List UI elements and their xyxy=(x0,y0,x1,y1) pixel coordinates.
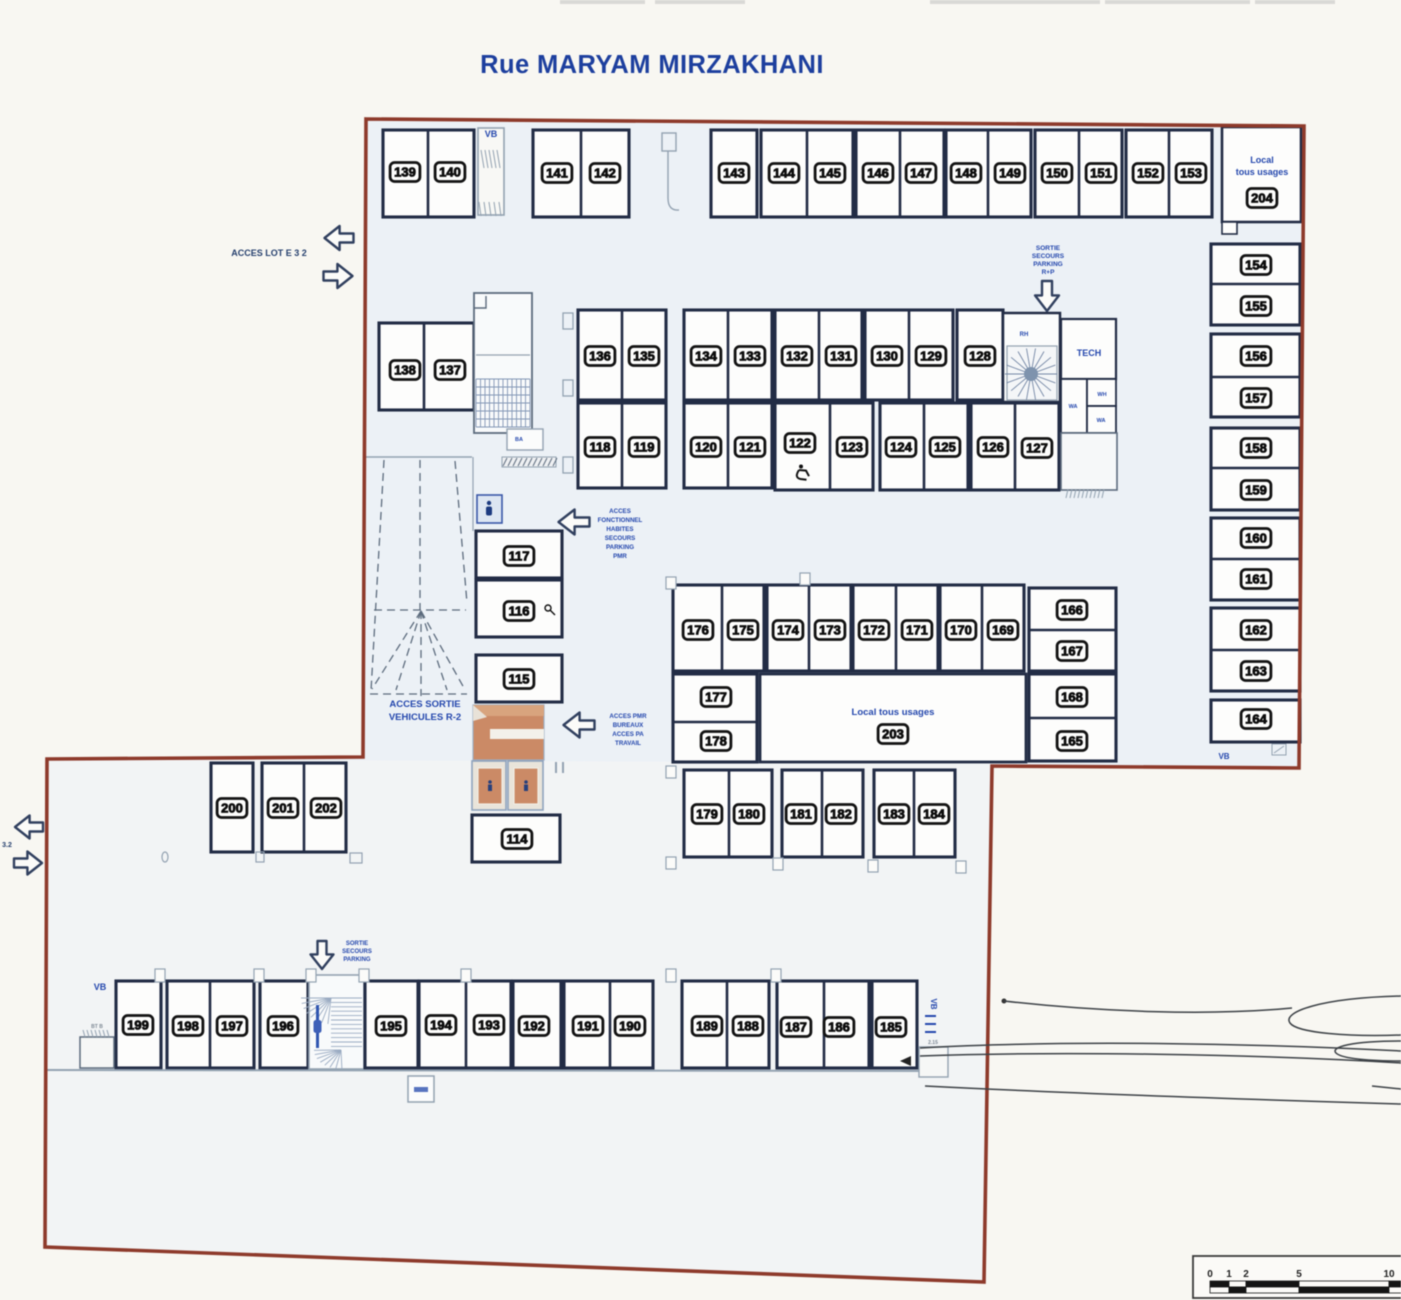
svg-text:WH: WH xyxy=(1097,392,1106,398)
svg-text:ACCES PMR: ACCES PMR xyxy=(609,713,647,720)
svg-text:SECOURS: SECOURS xyxy=(605,535,636,542)
svg-text:164: 164 xyxy=(1245,712,1267,727)
svg-text:187: 187 xyxy=(785,1020,807,1035)
svg-text:144: 144 xyxy=(773,166,795,181)
svg-text:200: 200 xyxy=(221,801,243,816)
svg-text:194: 194 xyxy=(430,1018,452,1033)
svg-text:121: 121 xyxy=(739,440,761,455)
svg-text:171: 171 xyxy=(906,623,928,638)
svg-text:145: 145 xyxy=(819,166,841,181)
svg-text:182: 182 xyxy=(830,807,852,822)
svg-text:137: 137 xyxy=(439,363,461,378)
svg-text:201: 201 xyxy=(272,801,294,816)
svg-text:119: 119 xyxy=(634,440,655,455)
svg-text:173: 173 xyxy=(819,623,841,638)
svg-text:Local tous usages: Local tous usages xyxy=(852,707,935,718)
svg-text:184: 184 xyxy=(923,807,945,822)
svg-text:192: 192 xyxy=(523,1019,545,1034)
svg-text:116: 116 xyxy=(509,604,530,619)
svg-text:ACCES SORTIE: ACCES SORTIE xyxy=(389,699,460,710)
svg-text:PARKING: PARKING xyxy=(343,957,371,963)
svg-text:149: 149 xyxy=(999,166,1021,181)
svg-text:PARKING: PARKING xyxy=(1033,261,1063,268)
svg-text:177: 177 xyxy=(705,690,727,705)
svg-text:196: 196 xyxy=(272,1019,294,1034)
svg-text:176: 176 xyxy=(687,623,709,638)
svg-text:WA: WA xyxy=(1069,404,1078,410)
svg-text:156: 156 xyxy=(1245,349,1267,364)
svg-text:BA: BA xyxy=(515,437,523,443)
svg-text:VEHICULES R-2: VEHICULES R-2 xyxy=(389,712,461,723)
svg-text:175: 175 xyxy=(732,623,754,638)
svg-text:141: 141 xyxy=(546,166,568,181)
svg-text:190: 190 xyxy=(619,1019,641,1034)
svg-text:179: 179 xyxy=(696,807,718,822)
svg-text:124: 124 xyxy=(890,440,912,455)
svg-text:189: 189 xyxy=(696,1019,718,1034)
svg-text:162: 162 xyxy=(1245,623,1267,638)
svg-text:SORTIE: SORTIE xyxy=(346,941,368,947)
svg-text:127: 127 xyxy=(1026,441,1048,456)
svg-text:165: 165 xyxy=(1061,734,1083,749)
svg-text:VB: VB xyxy=(485,129,498,139)
svg-text:5: 5 xyxy=(1296,1269,1302,1280)
svg-text:163: 163 xyxy=(1245,664,1267,679)
svg-text:140: 140 xyxy=(439,165,461,180)
svg-text:TRAVAIL: TRAVAIL xyxy=(615,740,641,747)
svg-text:133: 133 xyxy=(739,349,761,364)
svg-text:117: 117 xyxy=(509,549,530,564)
svg-text:195: 195 xyxy=(380,1019,402,1034)
svg-text:118: 118 xyxy=(590,440,611,455)
svg-text:180: 180 xyxy=(738,807,760,822)
svg-text:3.2: 3.2 xyxy=(2,842,12,849)
svg-text:202: 202 xyxy=(315,801,337,816)
svg-text:SECOURS: SECOURS xyxy=(1032,253,1065,260)
svg-text:RH: RH xyxy=(1020,332,1029,338)
svg-text:150: 150 xyxy=(1046,166,1068,181)
svg-text:1: 1 xyxy=(1226,1269,1232,1280)
svg-text:VB: VB xyxy=(1218,752,1229,761)
svg-text:199: 199 xyxy=(127,1018,149,1033)
svg-text:10: 10 xyxy=(1383,1269,1395,1280)
svg-text:ACCES: ACCES xyxy=(609,508,631,515)
svg-text:2.15: 2.15 xyxy=(928,1040,938,1046)
svg-text:169: 169 xyxy=(992,623,1014,638)
svg-text:167: 167 xyxy=(1061,644,1083,659)
svg-text:186: 186 xyxy=(828,1020,850,1035)
svg-text:134: 134 xyxy=(695,349,717,364)
svg-text:183: 183 xyxy=(883,807,905,822)
svg-text:BT B: BT B xyxy=(91,1024,103,1030)
svg-text:FONCTIONNEL: FONCTIONNEL xyxy=(598,517,643,524)
svg-text:ACCES LOT E 3 2: ACCES LOT E 3 2 xyxy=(231,248,307,258)
svg-text:161: 161 xyxy=(1245,572,1267,587)
svg-text:197: 197 xyxy=(221,1019,243,1034)
svg-text:Local: Local xyxy=(1250,155,1274,165)
svg-text:136: 136 xyxy=(589,349,611,364)
svg-text:Rue MARYAM MIRZAKHANI: Rue MARYAM MIRZAKHANI xyxy=(480,51,824,79)
svg-text:R+P: R+P xyxy=(1042,269,1055,276)
svg-text:128: 128 xyxy=(969,349,991,364)
svg-text:193: 193 xyxy=(478,1018,500,1033)
svg-text:166: 166 xyxy=(1061,603,1083,618)
svg-text:191: 191 xyxy=(577,1019,599,1034)
svg-text:178: 178 xyxy=(705,734,727,749)
svg-text:146: 146 xyxy=(867,166,889,181)
svg-text:143: 143 xyxy=(723,166,745,181)
svg-text:120: 120 xyxy=(695,440,717,455)
svg-text:122: 122 xyxy=(789,436,811,451)
svg-text:TECH: TECH xyxy=(1077,348,1102,358)
svg-text:159: 159 xyxy=(1245,483,1267,498)
svg-text:129: 129 xyxy=(920,349,942,364)
svg-text:154: 154 xyxy=(1245,258,1267,273)
svg-text:185: 185 xyxy=(880,1020,902,1035)
svg-text:204: 204 xyxy=(1251,191,1273,206)
svg-text:139: 139 xyxy=(394,165,416,180)
svg-text:ACCES PA: ACCES PA xyxy=(612,731,644,738)
svg-text:131: 131 xyxy=(830,349,852,364)
svg-text:142: 142 xyxy=(594,166,616,181)
svg-text:114: 114 xyxy=(507,832,529,847)
svg-text:PMR: PMR xyxy=(613,553,627,560)
svg-text:138: 138 xyxy=(394,363,416,378)
svg-text:VB: VB xyxy=(929,998,938,1009)
svg-text:126: 126 xyxy=(982,440,1004,455)
svg-text:172: 172 xyxy=(863,623,885,638)
svg-text:157: 157 xyxy=(1245,391,1267,406)
svg-text:148: 148 xyxy=(955,166,977,181)
svg-text:168: 168 xyxy=(1061,690,1083,705)
svg-text:155: 155 xyxy=(1245,299,1267,314)
svg-text:0: 0 xyxy=(1207,1269,1213,1280)
svg-text:BUREAUX: BUREAUX xyxy=(613,722,644,729)
svg-text:170: 170 xyxy=(950,623,972,638)
svg-text:181: 181 xyxy=(790,807,812,822)
svg-text:188: 188 xyxy=(737,1019,759,1034)
svg-text:160: 160 xyxy=(1245,531,1267,546)
svg-text:135: 135 xyxy=(633,349,655,364)
svg-text:152: 152 xyxy=(1137,166,1159,181)
svg-text:115: 115 xyxy=(509,672,530,687)
svg-text:132: 132 xyxy=(786,349,808,364)
svg-text:174: 174 xyxy=(777,623,799,638)
svg-text:153: 153 xyxy=(1180,166,1202,181)
svg-text:tous usages: tous usages xyxy=(1236,167,1289,177)
svg-text:125: 125 xyxy=(934,440,956,455)
svg-text:130: 130 xyxy=(876,349,898,364)
svg-text:WA: WA xyxy=(1097,418,1106,424)
svg-text:PARKING: PARKING xyxy=(606,544,634,551)
svg-text:151: 151 xyxy=(1090,166,1112,181)
svg-text:SECOURS: SECOURS xyxy=(342,949,372,955)
svg-text:VB: VB xyxy=(94,982,107,992)
svg-text:2: 2 xyxy=(1243,1269,1249,1280)
svg-text:198: 198 xyxy=(177,1019,199,1034)
svg-text:158: 158 xyxy=(1245,441,1267,456)
svg-text:SORTIE: SORTIE xyxy=(1036,245,1061,252)
svg-text:147: 147 xyxy=(910,166,932,181)
svg-text:123: 123 xyxy=(841,440,863,455)
svg-text:203: 203 xyxy=(882,727,904,742)
svg-text:HABITES: HABITES xyxy=(606,526,633,533)
